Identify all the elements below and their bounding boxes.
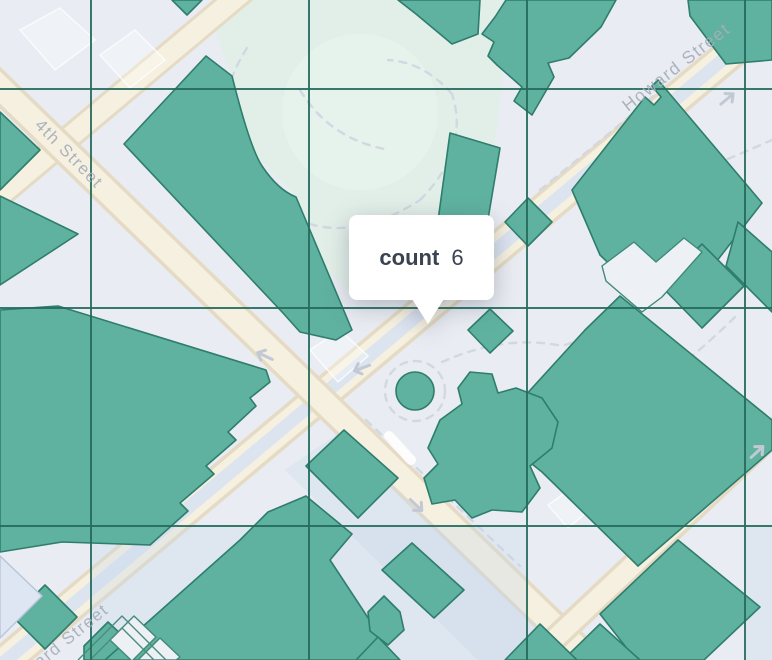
tooltip-pointer (412, 299, 444, 324)
building-carousel (396, 372, 434, 410)
tooltip-field-name: count (379, 245, 439, 271)
park-inner-lawn (282, 34, 438, 190)
tooltip-field-value: 6 (451, 245, 463, 271)
hover-tooltip: count 6 (349, 215, 494, 300)
tooltip-box: count 6 (349, 215, 494, 300)
map-view[interactable]: 4th StreetHoward Streetard Street count … (0, 0, 772, 660)
grid-cell-tint (745, 527, 772, 660)
map-canvas[interactable]: 4th StreetHoward Streetard Street (0, 0, 772, 660)
